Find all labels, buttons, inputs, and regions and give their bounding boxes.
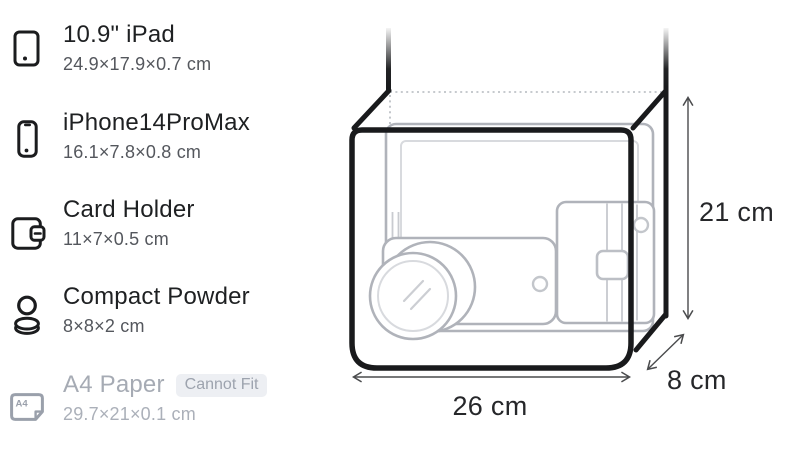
item-dimensions: 16.1×7.8×0.8 cm [63,143,250,162]
bag-contents [370,124,654,339]
compact-powder-icon [13,295,41,343]
cannot-fit-badge: Cannot Fit [176,374,268,397]
item-name: Card Holder [63,197,195,223]
item-dimensions: 24.9×17.9×0.7 cm [63,55,211,74]
wallet-icon [11,217,46,255]
svg-text:A4: A4 [16,399,29,410]
item-dimensions: 29.7×21×0.1 cm [63,405,267,424]
item-name: A4 Paper [63,372,165,398]
item-list: 10.9" iPad 24.9×17.9×0.7 cm iPhone14ProM… [0,0,340,455]
height-label: 21 cm [699,197,774,227]
item-dimensions: 11×7×0.5 cm [63,230,195,249]
bag-diagram: 26 cm 21 cm 8 cm [340,0,800,455]
width-label: 26 cm [452,391,527,421]
item-name: Compact Powder [63,284,250,310]
tablet-icon [13,30,40,72]
item-name: iPhone14ProMax [63,110,250,136]
bag-capacity-panel: 10.9" iPad 24.9×17.9×0.7 cm iPhone14ProM… [0,0,800,455]
card-holder-outline [557,202,654,323]
depth-label: 8 cm [667,365,727,395]
item-dimensions: 8×8×2 cm [63,317,250,336]
depth-arrow [648,335,683,369]
item-name: 10.9" iPad [63,22,175,48]
a4-paper-icon: A4 [10,393,44,426]
smartphone-icon [17,120,38,163]
